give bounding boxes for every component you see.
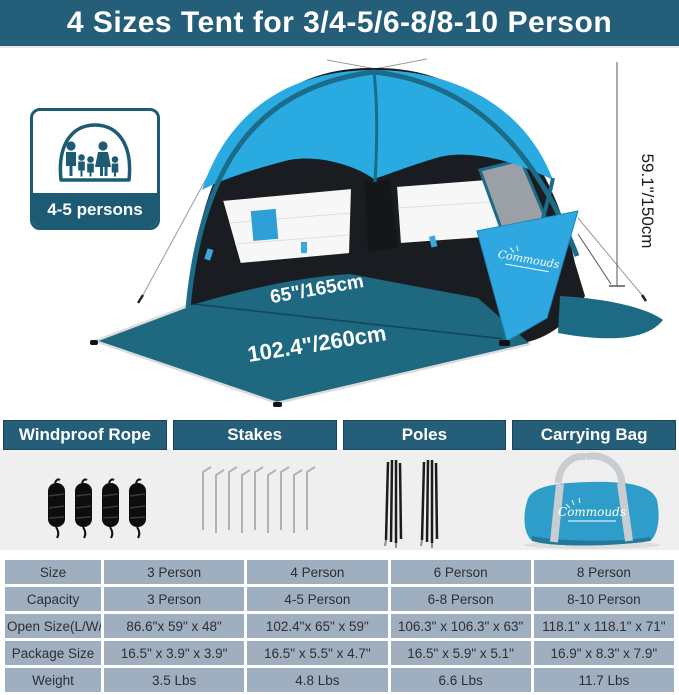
svg-text:Commouds: Commouds <box>558 505 626 519</box>
table-row-package-size: Package Size 16.5" x 3.9" x 3.9" 16.5" x… <box>5 641 674 665</box>
table-cell: 16.5" x 5.5" x 4.7" <box>247 641 387 665</box>
table-cell: 8-10 Person <box>534 587 674 611</box>
poles-image <box>385 460 437 548</box>
accessory-images-strip: Commouds <box>0 450 679 550</box>
table-cell: 4-5 Person <box>247 587 387 611</box>
row-label: Open Size(L/W/H) <box>5 614 101 638</box>
storage-pocket <box>251 209 279 241</box>
table-cell: 3 Person <box>104 587 244 611</box>
guy-rope-right <box>578 218 642 295</box>
table-row-capacity: Capacity 3 Person 4-5 Person 6-8 Person … <box>5 587 674 611</box>
persons-label: 4-5 persons <box>33 193 157 227</box>
table-cell: 16.5" x 3.9" x 3.9" <box>104 641 244 665</box>
table-cell: 102.4"x 65" x 59" <box>247 614 387 638</box>
spec-table: Size 3 Person 4 Person 6 Person 8 Person… <box>2 557 677 695</box>
table-row-open-size: Open Size(L/W/H) 86.6"x 59" x 48" 102.4"… <box>5 614 674 638</box>
table-cell: 4 Person <box>247 560 387 584</box>
row-label: Size <box>5 560 101 584</box>
row-label: Weight <box>5 668 101 692</box>
table-row-weight: Weight 3.5 Lbs 4.8 Lbs 6.6 Lbs 11.7 Lbs <box>5 668 674 692</box>
title-banner: 4 Sizes Tent for 3/4-5/6-8/8-10 Person <box>0 0 679 48</box>
tent-hero-section: Commouds 59.1"/150cm 65"/165cm 102.4"/26… <box>0 48 679 416</box>
page-title: 4 Sizes Tent for 3/4-5/6-8/8-10 Person <box>67 6 612 40</box>
persons-badge: 4-5 persons <box>30 108 160 230</box>
carrying-bag-image: Commouds <box>524 456 660 549</box>
rope-bundles-image <box>48 479 146 538</box>
sand-flap <box>558 296 663 338</box>
table-cell: 6 Person <box>391 560 531 584</box>
height-dimension-label: 59.1"/150cm <box>638 154 657 249</box>
table-cell: 16.9" x 8.3" x 7.9" <box>534 641 674 665</box>
accessory-header-stakes: Stakes <box>173 420 337 450</box>
family-tent-icon <box>49 116 141 188</box>
table-cell: 118.1" x 118.1" x 71" <box>534 614 674 638</box>
accessory-headers: Windproof Rope Stakes Poles Carrying Bag <box>0 420 679 450</box>
row-label: Capacity <box>5 587 101 611</box>
table-cell: 4.8 Lbs <box>247 668 387 692</box>
table-cell: 3 Person <box>104 560 244 584</box>
row-label: Package Size <box>5 641 101 665</box>
table-row-size: Size 3 Person 4 Person 6 Person 8 Person <box>5 560 674 584</box>
table-cell: 6-8 Person <box>391 587 531 611</box>
table-cell: 16.5" x 5.9" x 5.1" <box>391 641 531 665</box>
table-cell: 11.7 Lbs <box>534 668 674 692</box>
table-cell: 106.3" x 106.3" x 63" <box>391 614 531 638</box>
accessory-header-poles: Poles <box>343 420 507 450</box>
tent-illustration: Commouds 59.1"/150cm 65"/165cm 102.4"/26… <box>0 48 679 416</box>
accessory-header-bag: Carrying Bag <box>512 420 676 450</box>
table-cell: 3.5 Lbs <box>104 668 244 692</box>
accessory-header-rope: Windproof Rope <box>3 420 167 450</box>
table-cell: 86.6"x 59" x 48" <box>104 614 244 638</box>
table-cell: 6.6 Lbs <box>391 668 531 692</box>
stakes-image <box>203 467 315 533</box>
table-cell: 8 Person <box>534 560 674 584</box>
